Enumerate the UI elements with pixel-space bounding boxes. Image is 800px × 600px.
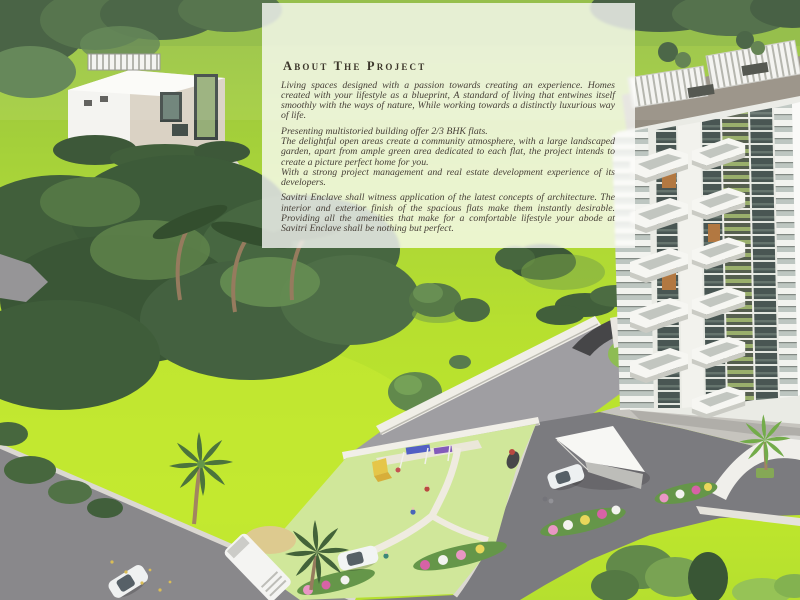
panel-paragraph: Savitri Enclave shall witness applicatio… xyxy=(281,193,615,234)
panel-paragraph: Living spaces designed with a passion to… xyxy=(281,81,615,122)
about-panel: About The Project Living spaces designed… xyxy=(262,3,635,248)
brochure-page: About The Project Living spaces designed… xyxy=(0,0,800,600)
panel-paragraph: With a strong project management and rea… xyxy=(281,168,615,189)
panel-paragraph: The delightful open areas create a commu… xyxy=(281,137,615,168)
panel-heading: About The Project xyxy=(283,60,615,73)
